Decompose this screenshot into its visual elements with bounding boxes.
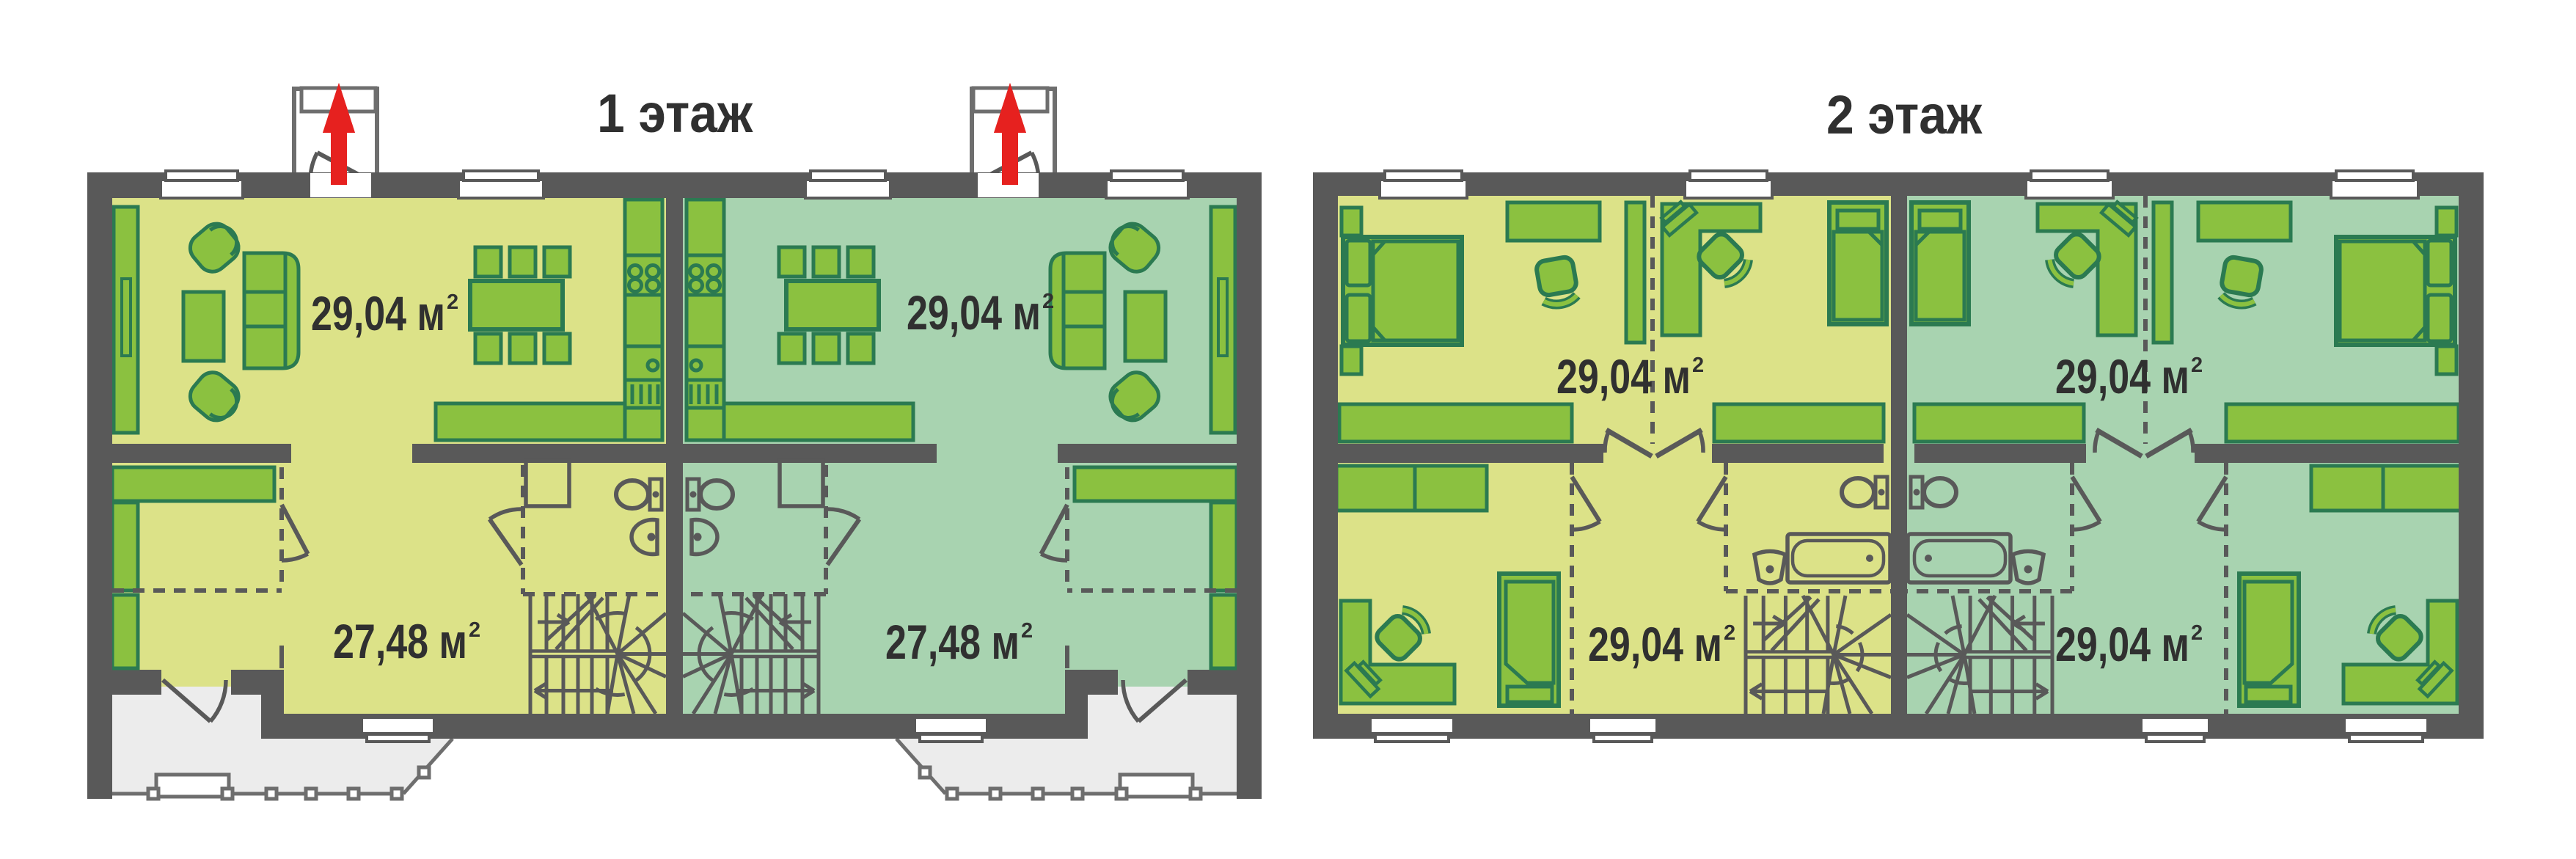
svg-text:27,48 м: 27,48 м	[333, 614, 467, 668]
svg-text:2 этаж: 2 этаж	[1826, 84, 1983, 145]
svg-text:29,04 м: 29,04 м	[2055, 617, 2189, 671]
svg-text:1 этаж: 1 этаж	[597, 83, 753, 144]
svg-text:2: 2	[2191, 621, 2203, 645]
svg-text:2: 2	[2191, 354, 2203, 377]
svg-text:29,04 м: 29,04 м	[1556, 349, 1691, 403]
svg-text:27,48 м: 27,48 м	[885, 615, 1020, 669]
svg-text:29,04 м: 29,04 м	[907, 285, 1041, 340]
svg-text:29,04 м: 29,04 м	[2055, 349, 2189, 403]
svg-text:2: 2	[1724, 621, 1735, 645]
svg-text:2: 2	[469, 618, 480, 642]
svg-text:29,04 м: 29,04 м	[311, 286, 445, 340]
svg-text:2: 2	[1692, 354, 1704, 377]
svg-text:2: 2	[1042, 290, 1054, 313]
svg-text:29,04 м: 29,04 м	[1588, 617, 1722, 671]
svg-text:2: 2	[1021, 619, 1033, 643]
svg-text:2: 2	[447, 290, 458, 314]
